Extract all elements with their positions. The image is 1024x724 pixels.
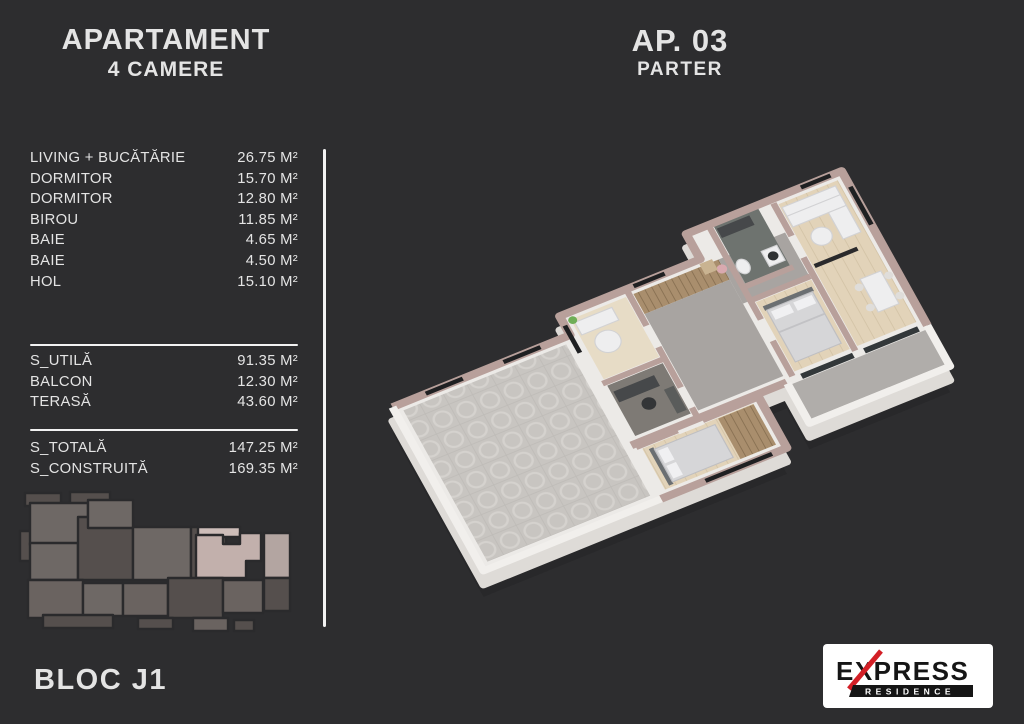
- summary-label: S_UTILĂ: [30, 353, 92, 369]
- apartment-title-block: APARTAMENT 4 CAMERE: [0, 25, 332, 82]
- room-label: HOL: [30, 274, 61, 290]
- total-area: 169.35 M²: [229, 461, 298, 477]
- divider-line: [30, 429, 298, 431]
- room-row: BAIE4.65 M²: [30, 232, 298, 253]
- divider-line: [30, 344, 298, 346]
- summary-row: TERASĂ43.60 M²: [30, 394, 298, 415]
- room-area: 11.85 M²: [238, 212, 298, 228]
- room-label: LIVING + BUCĂTĂRIE: [30, 150, 185, 166]
- room-label: DORMITOR: [30, 171, 113, 187]
- unit-title-block: AP. 03 PARTER: [560, 24, 800, 81]
- plan-sheet: APARTAMENT 4 CAMERE AP. 03 PARTER LIVING…: [0, 0, 1024, 724]
- room-area-list: LIVING + BUCĂTĂRIE26.75 M² DORMITOR15.70…: [30, 150, 298, 294]
- room-label: DORMITOR: [30, 191, 113, 207]
- total-row: S_TOTALĂ147.25 M²: [30, 440, 298, 461]
- room-area: 15.70 M²: [237, 171, 298, 187]
- logo-sub-text: RESIDENCE: [865, 687, 955, 697]
- vertical-divider: [323, 149, 326, 627]
- floorplan-3d-render: [350, 148, 1012, 616]
- room-row: DORMITOR15.70 M²: [30, 171, 298, 192]
- room-area: 4.50 M²: [246, 253, 298, 269]
- express-residence-logo: EXPRESS RESIDENCE: [823, 644, 993, 708]
- room-row: HOL15.10 M²: [30, 274, 298, 295]
- total-label: S_TOTALĂ: [30, 440, 107, 456]
- totals-list: S_TOTALĂ147.25 M² S_CONSTRUITĂ169.35 M²: [30, 440, 298, 481]
- room-area: 26.75 M²: [237, 150, 298, 166]
- summary-area: 12.30 M²: [237, 374, 298, 390]
- summary-list: S_UTILĂ91.35 M² BALCON12.30 M² TERASĂ43.…: [30, 353, 298, 415]
- summary-label: BALCON: [30, 374, 93, 390]
- apartment-title: APARTAMENT: [0, 25, 332, 56]
- room-label: BAIE: [30, 232, 65, 248]
- total-row: S_CONSTRUITĂ169.35 M²: [30, 461, 298, 482]
- room-area: 4.65 M²: [246, 232, 298, 248]
- summary-row: BALCON12.30 M²: [30, 374, 298, 395]
- summary-label: TERASĂ: [30, 394, 91, 410]
- summary-area: 91.35 M²: [237, 353, 298, 369]
- summary-row: S_UTILĂ91.35 M²: [30, 353, 298, 374]
- room-label: BIROU: [30, 212, 78, 228]
- total-area: 147.25 M²: [229, 440, 298, 456]
- block-label: BLOC J1: [34, 664, 167, 697]
- summary-area: 43.60 M²: [237, 394, 298, 410]
- room-row: BAIE4.50 M²: [30, 253, 298, 274]
- unit-level: PARTER: [560, 59, 800, 81]
- total-label: S_CONSTRUITĂ: [30, 461, 148, 477]
- room-row: DORMITOR12.80 M²: [30, 191, 298, 212]
- unit-number: AP. 03: [560, 24, 800, 57]
- block-keyplan: [18, 483, 308, 635]
- room-row: BIROU11.85 M²: [30, 212, 298, 233]
- room-label: BAIE: [30, 253, 65, 269]
- room-area: 15.10 M²: [237, 274, 298, 290]
- room-area: 12.80 M²: [237, 191, 298, 207]
- apartment-subtitle: 4 CAMERE: [0, 58, 332, 82]
- room-row: LIVING + BUCĂTĂRIE26.75 M²: [30, 150, 298, 171]
